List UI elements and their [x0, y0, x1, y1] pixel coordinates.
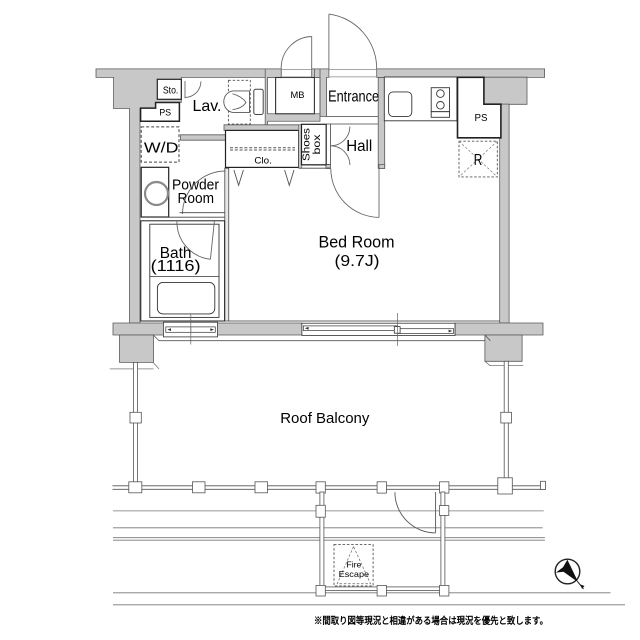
- svg-text:(9.7J): (9.7J): [335, 253, 380, 270]
- svg-text:PS: PS: [475, 113, 488, 124]
- svg-text:Entrance: Entrance: [328, 88, 379, 105]
- svg-text:Hall: Hall: [346, 138, 372, 155]
- svg-text:Room: Room: [178, 190, 215, 207]
- svg-text:PS: PS: [159, 107, 171, 118]
- svg-text:Shoes: Shoes: [302, 128, 313, 161]
- svg-text:※間取り図等現況と相違がある場合は現況を優先と致します。: ※間取り図等現況と相違がある場合は現況を優先と致します。: [314, 615, 548, 627]
- svg-text:Lav.: Lav.: [193, 98, 222, 115]
- svg-text:Sto.: Sto.: [163, 86, 179, 97]
- svg-text:Clo.: Clo.: [254, 156, 272, 167]
- svg-text:W/D: W/D: [144, 139, 179, 156]
- svg-text:Escape: Escape: [339, 569, 370, 579]
- svg-text:MB: MB: [291, 90, 305, 101]
- svg-text:Bed Room: Bed Room: [319, 234, 395, 252]
- svg-text:Roof Balcony: Roof Balcony: [280, 410, 370, 427]
- svg-text:box: box: [312, 135, 323, 155]
- svg-text:R: R: [474, 152, 483, 169]
- svg-text:(1116): (1116): [151, 258, 201, 275]
